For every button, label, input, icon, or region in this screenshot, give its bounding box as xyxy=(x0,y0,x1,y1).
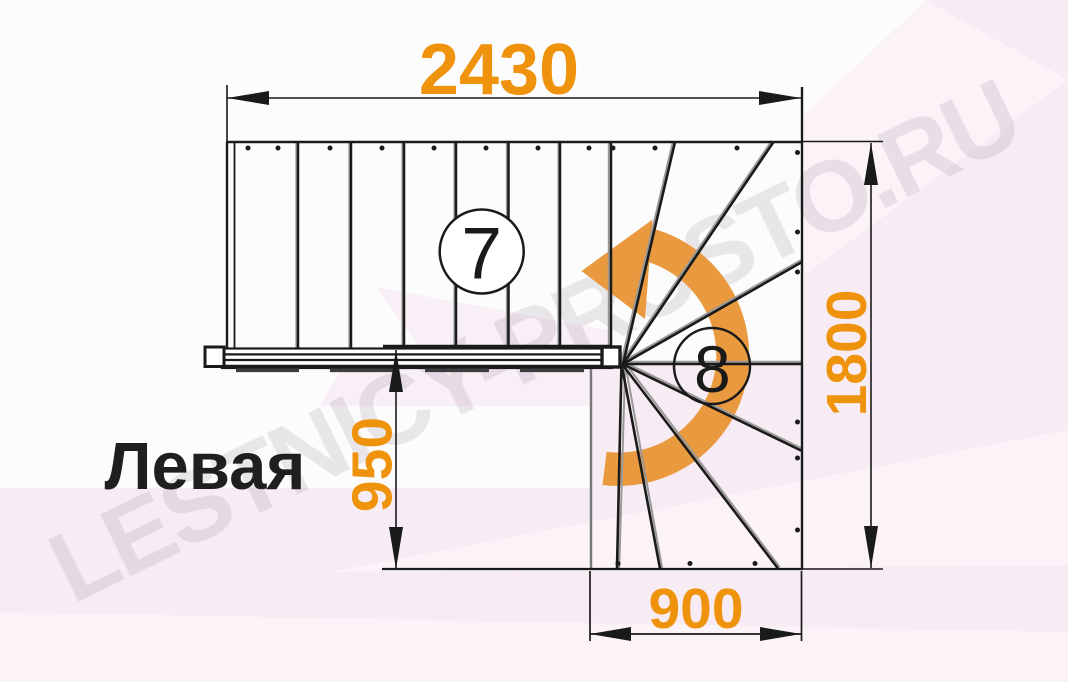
svg-text:900: 900 xyxy=(648,577,743,641)
svg-text:2430: 2430 xyxy=(419,30,579,110)
svg-text:1800: 1800 xyxy=(815,290,879,417)
svg-text:8: 8 xyxy=(694,332,731,406)
svg-text:950: 950 xyxy=(341,417,405,512)
svg-text:Левая: Левая xyxy=(105,429,306,504)
svg-text:7: 7 xyxy=(461,214,502,295)
